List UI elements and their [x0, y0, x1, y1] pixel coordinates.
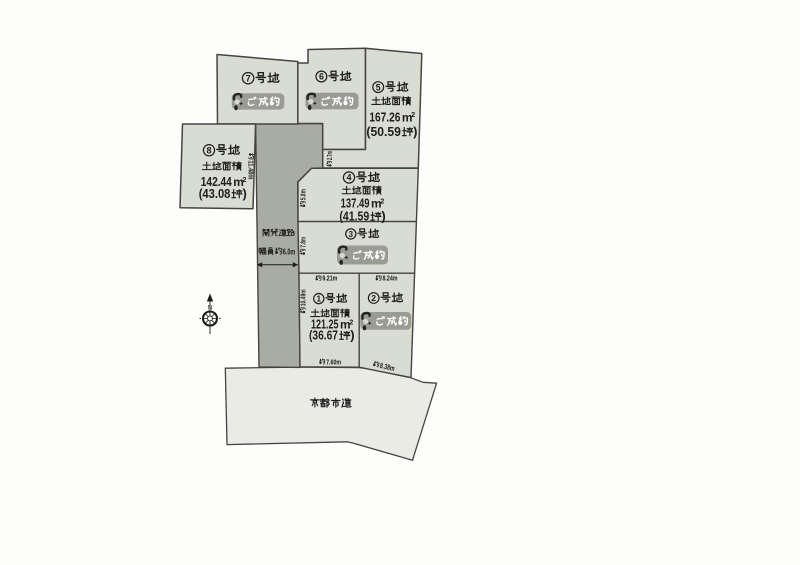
svg-text:2.7m: 2.7m: [325, 151, 334, 160]
svg-text:2: 2: [242, 175, 246, 184]
svg-text:1: 1: [317, 295, 322, 304]
svg-text:7.60m: 7.60m: [326, 357, 341, 366]
svg-text:): ): [243, 186, 247, 201]
svg-text:5.8m: 5.8m: [299, 189, 308, 200]
svg-text:11.48m: 11.48m: [247, 160, 256, 179]
svg-text:(41.59: (41.59: [339, 208, 369, 223]
svg-text:9.21m: 9.21m: [322, 274, 337, 283]
svg-text:6: 6: [319, 72, 324, 82]
svg-text:7.8m: 7.8m: [299, 237, 308, 248]
svg-text:2: 2: [411, 110, 415, 119]
svg-text:8: 8: [206, 145, 211, 155]
svg-text:2: 2: [380, 197, 384, 206]
svg-text:(36.67: (36.67: [309, 328, 338, 343]
svg-text:N: N: [208, 305, 213, 312]
svg-text:): ): [413, 124, 417, 139]
svg-text:8.24m: 8.24m: [383, 274, 398, 283]
svg-text:(43.08: (43.08: [199, 186, 231, 201]
svg-text:2: 2: [349, 318, 353, 327]
svg-text:6.0m: 6.0m: [283, 247, 296, 256]
svg-text:4: 4: [346, 173, 351, 183]
svg-text:): ): [350, 328, 354, 343]
svg-text:10.49m: 10.49m: [299, 289, 308, 306]
svg-text:2: 2: [371, 293, 376, 303]
svg-text:5: 5: [376, 82, 381, 92]
svg-text:7: 7: [246, 74, 251, 84]
svg-text:(50.59: (50.59: [366, 124, 401, 139]
svg-text:): ): [381, 208, 385, 223]
svg-text:167.26: 167.26: [369, 109, 400, 124]
svg-text:3: 3: [349, 230, 354, 239]
